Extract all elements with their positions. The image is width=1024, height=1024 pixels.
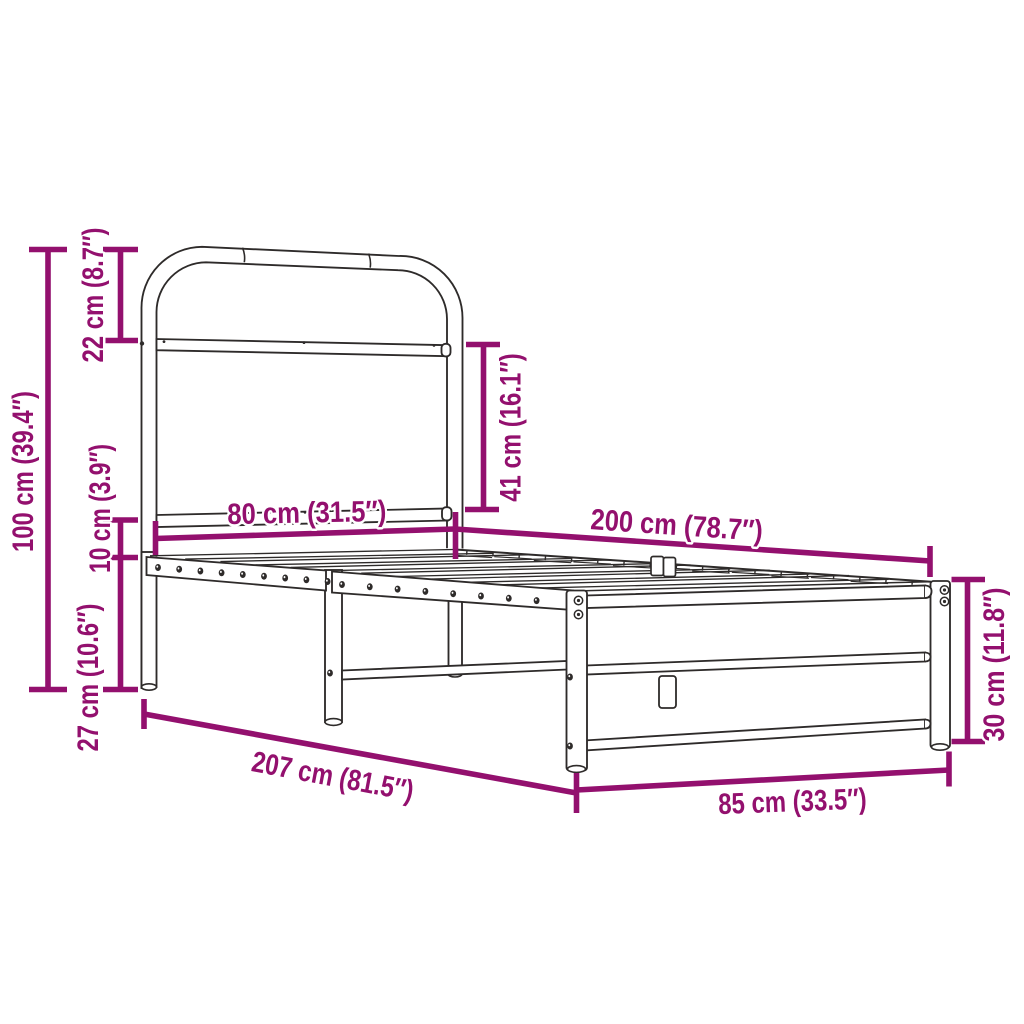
svg-text:85 cm (33.5″): 85 cm (33.5″) xyxy=(718,782,868,821)
svg-text:27 cm (10.6″): 27 cm (10.6″) xyxy=(72,604,105,752)
svg-text:22 cm (8.7″): 22 cm (8.7″) xyxy=(77,228,110,363)
svg-text:100 cm (39.4″): 100 cm (39.4″) xyxy=(7,391,40,552)
svg-text:41 cm (16.1″): 41 cm (16.1″) xyxy=(495,353,528,502)
svg-text:30 cm (11.8″): 30 cm (11.8″) xyxy=(978,588,1011,742)
svg-text:80 cm (31.5″): 80 cm (31.5″) xyxy=(227,495,387,531)
svg-text:10 cm (3.9″): 10 cm (3.9″) xyxy=(84,444,117,573)
